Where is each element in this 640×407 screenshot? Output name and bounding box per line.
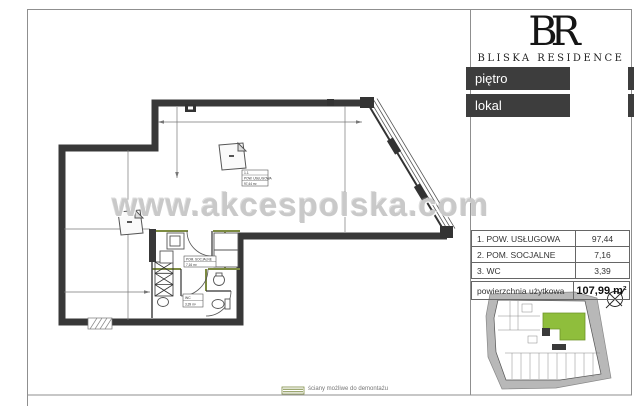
room-name: 3. WC (472, 263, 576, 279)
room-name: 1. POW. USŁUGOWA (472, 231, 576, 247)
total-area-value: 107,99 m² (573, 282, 629, 299)
total-area-label: powierzchnia użytkowa (472, 286, 573, 296)
floor-field: piętro (466, 67, 570, 90)
shaft-symbol (155, 262, 173, 296)
total-area-row: powierzchnia użytkowa 107,99 m² (471, 281, 630, 300)
unit-plan: 1.1 POW. USŁUGOWA 97,44 m² POM. SOCJALNE… (62, 97, 455, 329)
column-symbol (118, 143, 246, 235)
table-row: 1. POW. USŁUGOWA 97,44 (472, 231, 630, 247)
sink-icon (158, 298, 169, 307)
svg-text:WC: WC (185, 296, 191, 300)
floor-plan-page: 1.1 POW. USŁUGOWA 97,44 m² POM. SOCJALNE… (0, 0, 640, 407)
unit-field: lokal (466, 94, 570, 117)
glazed-diagonal-wall (360, 97, 455, 238)
legend-swatch (282, 387, 304, 394)
toilet-icon (212, 300, 224, 309)
room-label-wc: WC 3,39 m² (183, 294, 203, 307)
brand-logo: BR (470, 11, 632, 53)
svg-text:1.1: 1.1 (244, 171, 249, 175)
svg-text:POW. USŁUGOWA: POW. USŁUGOWA (244, 177, 273, 181)
svg-text:3,39 m²: 3,39 m² (185, 303, 196, 307)
floor-value-box (628, 67, 634, 90)
bottom-wall-hatch (88, 318, 112, 329)
svg-text:POM. SOCJALNE: POM. SOCJALNE (186, 258, 212, 262)
room-area: 7,16 (576, 247, 630, 263)
floor-field-label: piętro (475, 71, 508, 86)
room-name: 2. POM. SOCJALNE (472, 247, 576, 263)
area-table: 1. POW. USŁUGOWA 97,44 2. POM. SOCJALNE … (471, 230, 630, 279)
wall-tick (327, 99, 334, 106)
room-area: 97,44 (576, 231, 630, 247)
unit-value-box (628, 94, 634, 117)
table-row: 2. POM. SOCJALNE 7,16 (472, 247, 630, 263)
dimension-lines (64, 106, 362, 320)
room-area: 3,39 (576, 263, 630, 279)
brand-name: BLISKA RESIDENCE (470, 53, 632, 64)
table-row: 3. WC 3,39 (472, 263, 630, 279)
room-label-main: 1.1 POW. USŁUGOWA 97,44 m² (242, 170, 273, 186)
room-label-social: POM. SOCJALNE 7,16 m² (184, 256, 216, 267)
sidebar: BR BLISKA RESIDENCE piętro lokal 1. POW.… (470, 9, 632, 395)
legend-label: ściany możliwe do demontażu (308, 386, 388, 392)
unit-field-label: lokal (475, 98, 502, 113)
svg-text:97,44 m²: 97,44 m² (244, 182, 257, 186)
svg-text:7,16 m²: 7,16 m² (186, 263, 197, 267)
vent-symbol (185, 104, 196, 112)
